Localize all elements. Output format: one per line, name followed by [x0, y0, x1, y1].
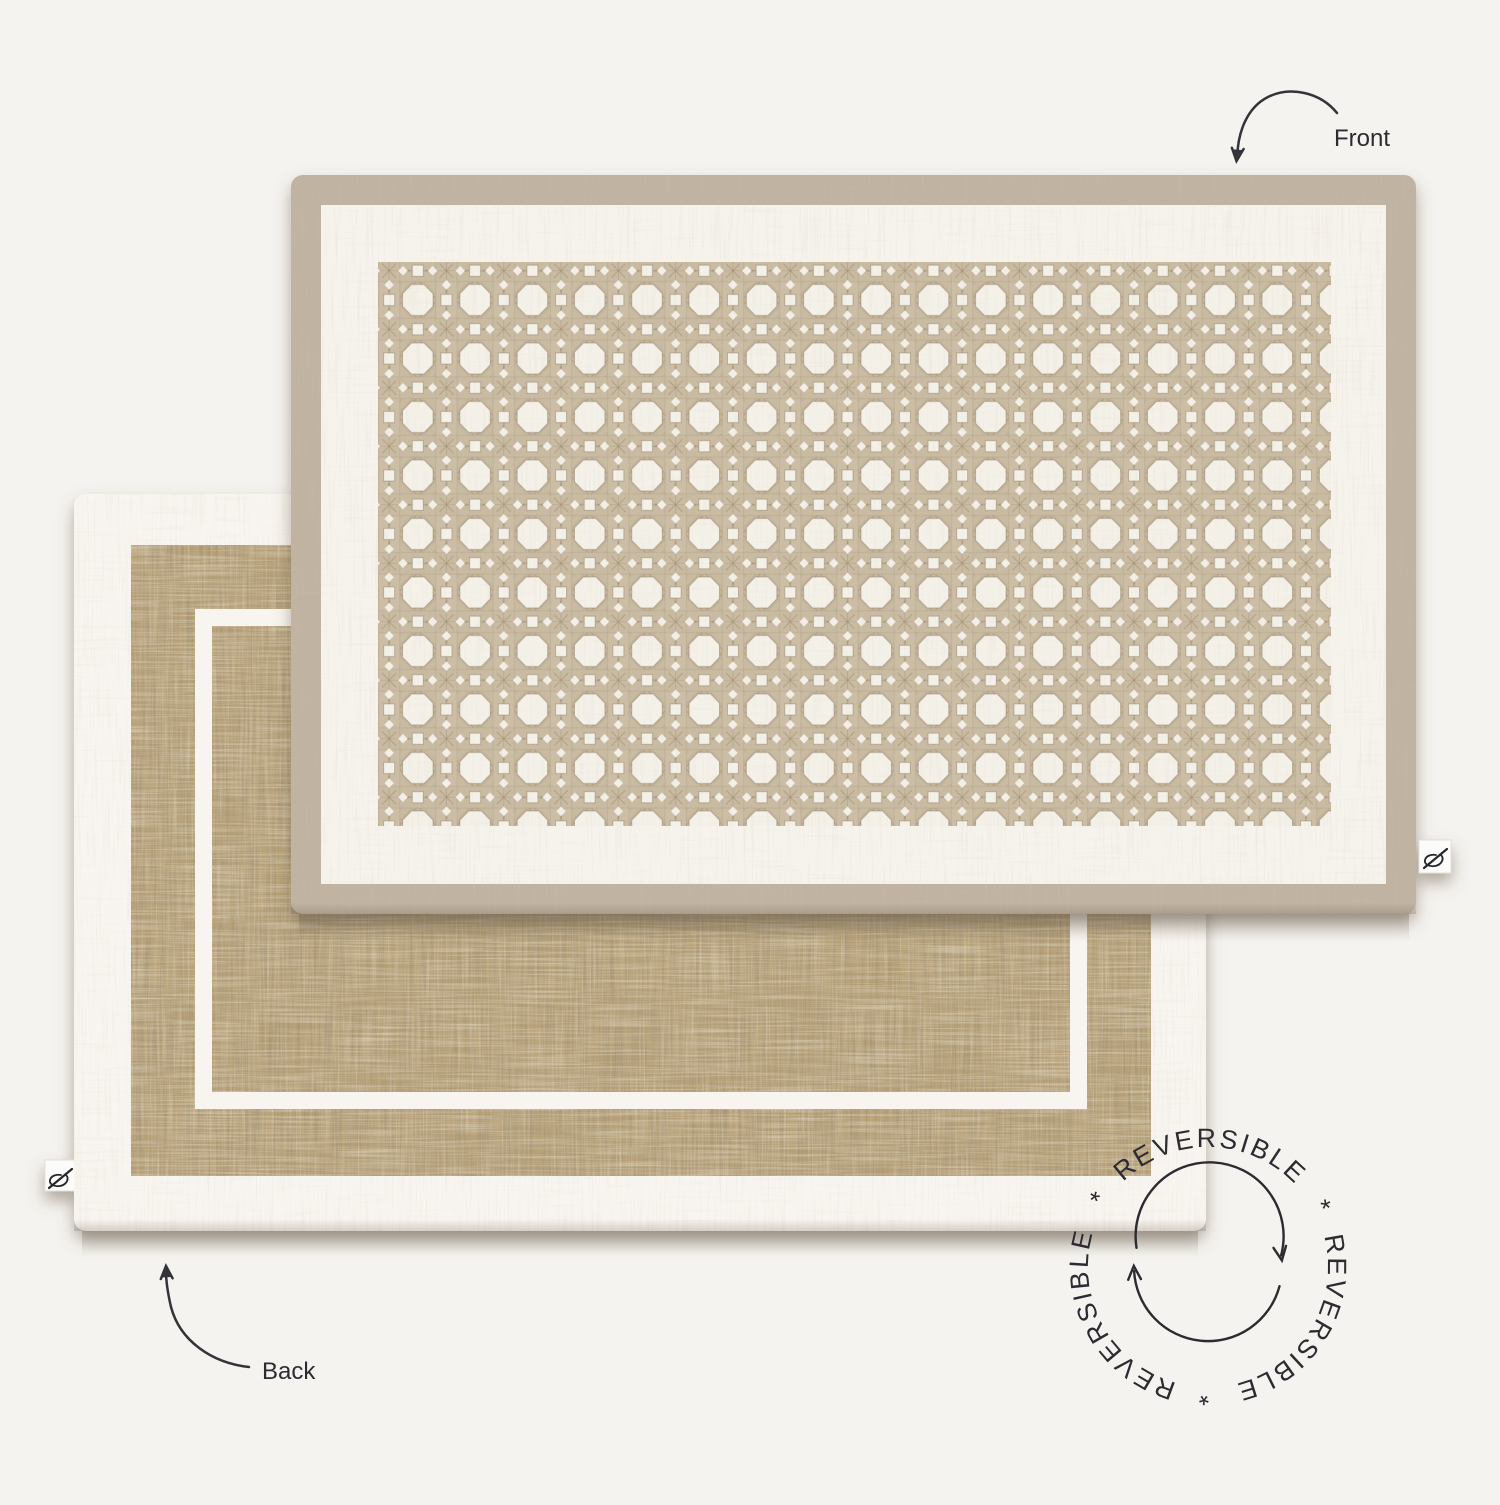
svg-text:Back: Back: [262, 1358, 316, 1385]
svg-text:Front: Front: [1334, 125, 1390, 152]
svg-text:*: *: [1199, 1381, 1210, 1411]
